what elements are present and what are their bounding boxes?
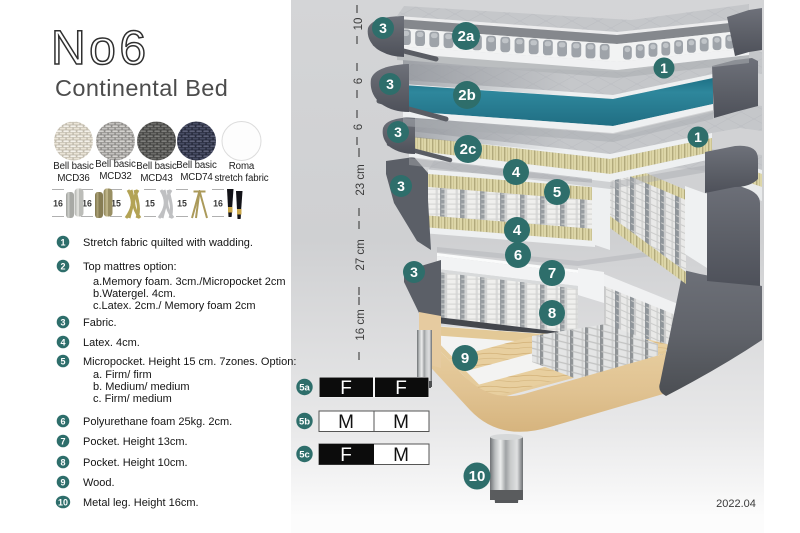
svg-text:No6: No6 <box>51 22 150 75</box>
svg-text:15: 15 <box>177 199 187 209</box>
svg-text:2a: 2a <box>458 28 475 45</box>
svg-text:3: 3 <box>60 317 65 327</box>
svg-text:3: 3 <box>394 124 402 140</box>
svg-text:Metal leg. Height 16cm.: Metal leg. Height 16cm. <box>83 497 199 509</box>
svg-text:b.Watergel. 4cm.: b.Watergel. 4cm. <box>93 288 176 300</box>
svg-text:stretch fabric: stretch fabric <box>214 173 268 184</box>
svg-text:Micropocket. Height 15 cm. 7zo: Micropocket. Height 15 cm. 7zones. Optio… <box>83 356 296 368</box>
svg-text:3: 3 <box>379 20 387 36</box>
svg-text:6: 6 <box>353 78 365 84</box>
svg-text:3: 3 <box>386 76 394 92</box>
svg-text:16: 16 <box>213 199 223 209</box>
svg-text:MCD43: MCD43 <box>140 173 172 184</box>
svg-text:10: 10 <box>353 18 365 31</box>
svg-text:8: 8 <box>60 457 65 467</box>
svg-text:Stretch fabric quilted with wa: Stretch fabric quilted with wadding. <box>83 237 253 249</box>
svg-text:4: 4 <box>513 222 522 239</box>
svg-text:27 cm: 27 cm <box>355 239 367 270</box>
svg-text:MCD32: MCD32 <box>99 171 131 182</box>
svg-text:2: 2 <box>60 261 65 271</box>
svg-text:Continental Bed: Continental Bed <box>55 75 228 101</box>
svg-text:2c: 2c <box>460 141 477 158</box>
svg-text:3: 3 <box>410 264 418 280</box>
svg-text:5: 5 <box>60 356 65 366</box>
svg-text:M: M <box>393 445 409 466</box>
svg-text:M: M <box>393 412 409 433</box>
svg-text:5c: 5c <box>299 450 310 461</box>
svg-text:F: F <box>340 378 352 399</box>
svg-text:Bell basic: Bell basic <box>176 160 217 171</box>
svg-text:10: 10 <box>469 468 486 485</box>
svg-text:16: 16 <box>53 199 63 209</box>
svg-text:7: 7 <box>60 436 65 446</box>
svg-text:6: 6 <box>60 416 65 426</box>
svg-text:4: 4 <box>512 164 521 181</box>
svg-text:a. Firm/ firm: a. Firm/ firm <box>93 369 152 381</box>
svg-text:b. Medium/ medium: b. Medium/ medium <box>93 381 190 393</box>
svg-text:c. Firm/ medium: c. Firm/ medium <box>93 393 172 405</box>
svg-text:5: 5 <box>553 184 561 201</box>
svg-text:Bell basic: Bell basic <box>136 161 177 172</box>
svg-text:Wood.: Wood. <box>83 477 115 489</box>
svg-text:1: 1 <box>694 129 702 145</box>
svg-text:M: M <box>338 412 354 433</box>
svg-text:Latex. 4cm.: Latex. 4cm. <box>83 337 140 349</box>
svg-text:Roma: Roma <box>229 161 255 172</box>
svg-text:Pocket. Height 13cm.: Pocket. Height 13cm. <box>83 436 188 448</box>
svg-text:9: 9 <box>60 477 65 487</box>
svg-text:16 cm: 16 cm <box>355 309 367 340</box>
svg-text:Fabric.: Fabric. <box>83 317 117 329</box>
svg-text:16: 16 <box>82 199 92 209</box>
svg-text:MCD36: MCD36 <box>57 173 89 184</box>
svg-text:15: 15 <box>145 199 155 209</box>
svg-text:F: F <box>340 445 352 466</box>
svg-text:7: 7 <box>548 265 556 282</box>
svg-text:6: 6 <box>353 124 365 130</box>
svg-text:10: 10 <box>58 497 68 507</box>
svg-text:9: 9 <box>461 350 469 367</box>
svg-text:Pocket. Height 10cm.: Pocket. Height 10cm. <box>83 457 188 469</box>
svg-text:a.Memory foam. 3cm./Micropocke: a.Memory foam. 3cm./Micropocket 2cm <box>93 276 286 288</box>
svg-text:F: F <box>395 378 407 399</box>
svg-text:3: 3 <box>397 178 405 194</box>
svg-text:MCD74: MCD74 <box>180 172 213 183</box>
svg-text:Bell basic: Bell basic <box>95 159 136 170</box>
svg-text:23 cm: 23 cm <box>355 164 367 195</box>
svg-text:c.Latex. 2cm./ Memory foam 2cm: c.Latex. 2cm./ Memory foam 2cm <box>93 300 256 312</box>
svg-text:5a: 5a <box>299 383 310 394</box>
svg-text:Bell basic: Bell basic <box>53 161 94 172</box>
svg-text:8: 8 <box>548 305 556 322</box>
svg-text:5b: 5b <box>299 417 310 428</box>
svg-text:6: 6 <box>514 247 522 264</box>
svg-text:Top mattres option:: Top mattres option: <box>83 261 177 273</box>
svg-text:2022.04: 2022.04 <box>716 498 756 510</box>
svg-text:4: 4 <box>60 337 65 347</box>
svg-text:1: 1 <box>660 60 668 76</box>
svg-text:2b: 2b <box>458 87 476 104</box>
svg-text:15: 15 <box>111 199 121 209</box>
svg-text:1: 1 <box>60 237 65 247</box>
svg-text:Polyurethane foam 25kg. 2cm.: Polyurethane foam 25kg. 2cm. <box>83 416 232 428</box>
